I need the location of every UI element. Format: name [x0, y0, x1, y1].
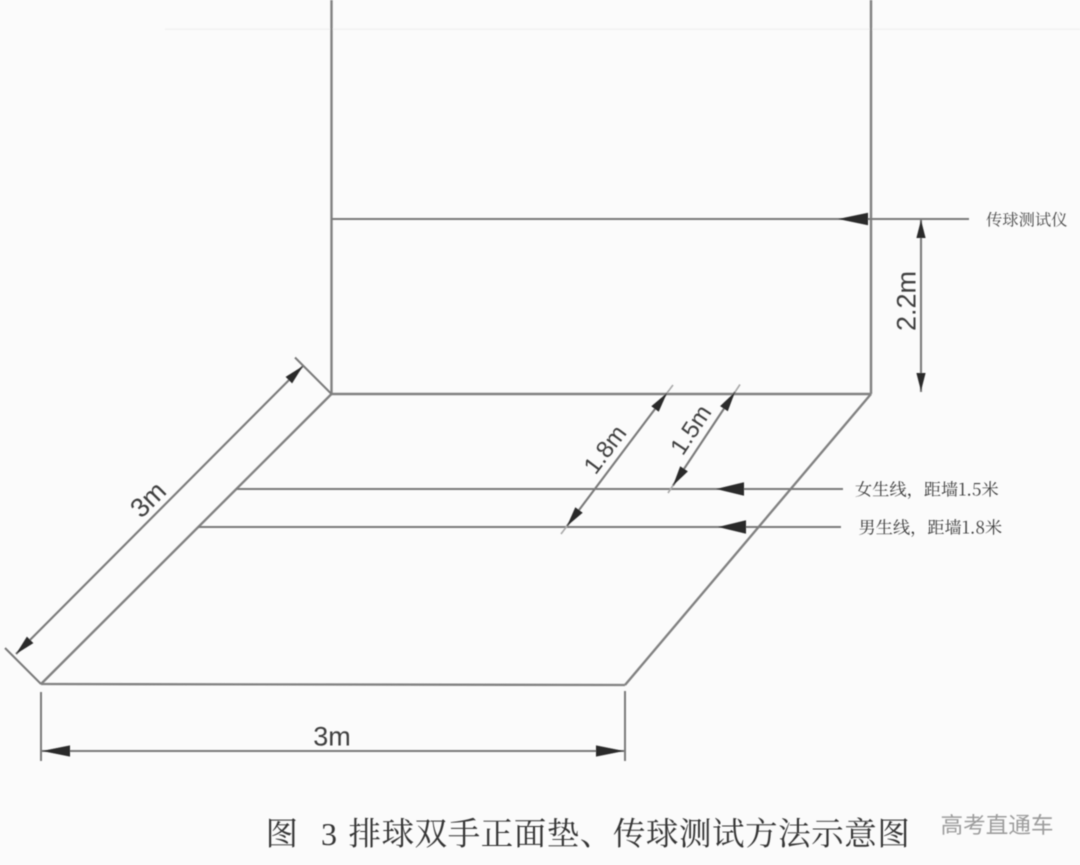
svg-text:3m: 3m	[124, 476, 172, 524]
svg-text:2.2m: 2.2m	[892, 271, 922, 331]
svg-text:3m: 3m	[313, 722, 351, 752]
svg-text:3: 3	[321, 816, 337, 852]
